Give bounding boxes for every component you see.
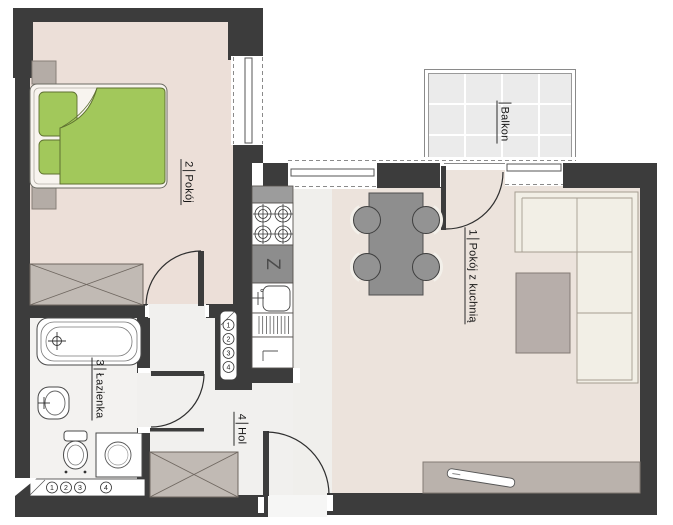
svg-text:1: 1 [227, 323, 231, 330]
dish-rack [252, 313, 293, 337]
living-fixed-window [505, 162, 563, 186]
svg-text:4: 4 [227, 365, 231, 372]
wall-stub [150, 428, 204, 432]
balcony-door [440, 163, 503, 230]
room-number: 3 [94, 360, 106, 366]
room-name: Balkon [499, 107, 511, 142]
chair [354, 254, 381, 281]
room-name: Pokój z kuchnią [467, 243, 479, 323]
toilet [64, 431, 88, 473]
label-divider [94, 369, 107, 370]
svg-text:Z: Z [262, 258, 283, 270]
label-balcony: Balkon [497, 101, 512, 144]
chair [413, 207, 440, 234]
riser-kitchen-stack: 1 2 3 4 [220, 311, 237, 380]
riser-bathroom-row: 1 2 3 4 [15, 478, 145, 496]
label-living: 1 Pokój z kuchnią [465, 227, 480, 324]
bedroom-window [231, 56, 265, 145]
room-number: 2 [183, 161, 195, 167]
label-divider [467, 239, 480, 240]
room-number: 4 [236, 414, 248, 420]
stove [252, 203, 293, 245]
bathtub [37, 318, 141, 365]
wall-jamb [293, 368, 300, 383]
label-divider [236, 423, 249, 424]
svg-text:2: 2 [227, 337, 231, 344]
coffee-table [516, 273, 570, 353]
label-divider [499, 103, 512, 104]
label-divider [183, 170, 196, 171]
kitchen-cabinet [252, 337, 293, 368]
svg-text:4: 4 [104, 485, 108, 492]
fixtures-layer: Z [0, 0, 673, 525]
kitchen-counter [252, 186, 293, 203]
dishwasher: Z [252, 245, 293, 283]
chair [413, 254, 440, 281]
hall-wardrobe [150, 452, 238, 497]
tv-cabinet [423, 462, 640, 493]
bedroom-wardrobe [30, 264, 143, 305]
bedroom-door [145, 251, 209, 317]
washbasin [38, 387, 69, 419]
bed [30, 84, 167, 188]
entrance-door [258, 431, 333, 513]
label-hall: 4 Hol [234, 412, 249, 446]
room-name: Pokój [183, 174, 195, 203]
chair [354, 207, 381, 234]
room-name: Hol [236, 427, 248, 444]
svg-text:1: 1 [50, 485, 54, 492]
washing-machine [96, 433, 142, 477]
bathroom-door [138, 368, 204, 433]
room-name: Łazienka [94, 373, 106, 419]
svg-text:3: 3 [227, 351, 231, 358]
label-bedroom: 2 Pokój [181, 159, 196, 205]
kitchen-sink [252, 283, 293, 313]
room-number: 1 [467, 229, 479, 235]
dining-table [369, 193, 423, 295]
svg-text:3: 3 [78, 485, 82, 492]
floor-plan: Z [0, 0, 673, 525]
svg-text:2: 2 [64, 485, 68, 492]
label-bathroom: 3 Łazienka [92, 358, 107, 421]
